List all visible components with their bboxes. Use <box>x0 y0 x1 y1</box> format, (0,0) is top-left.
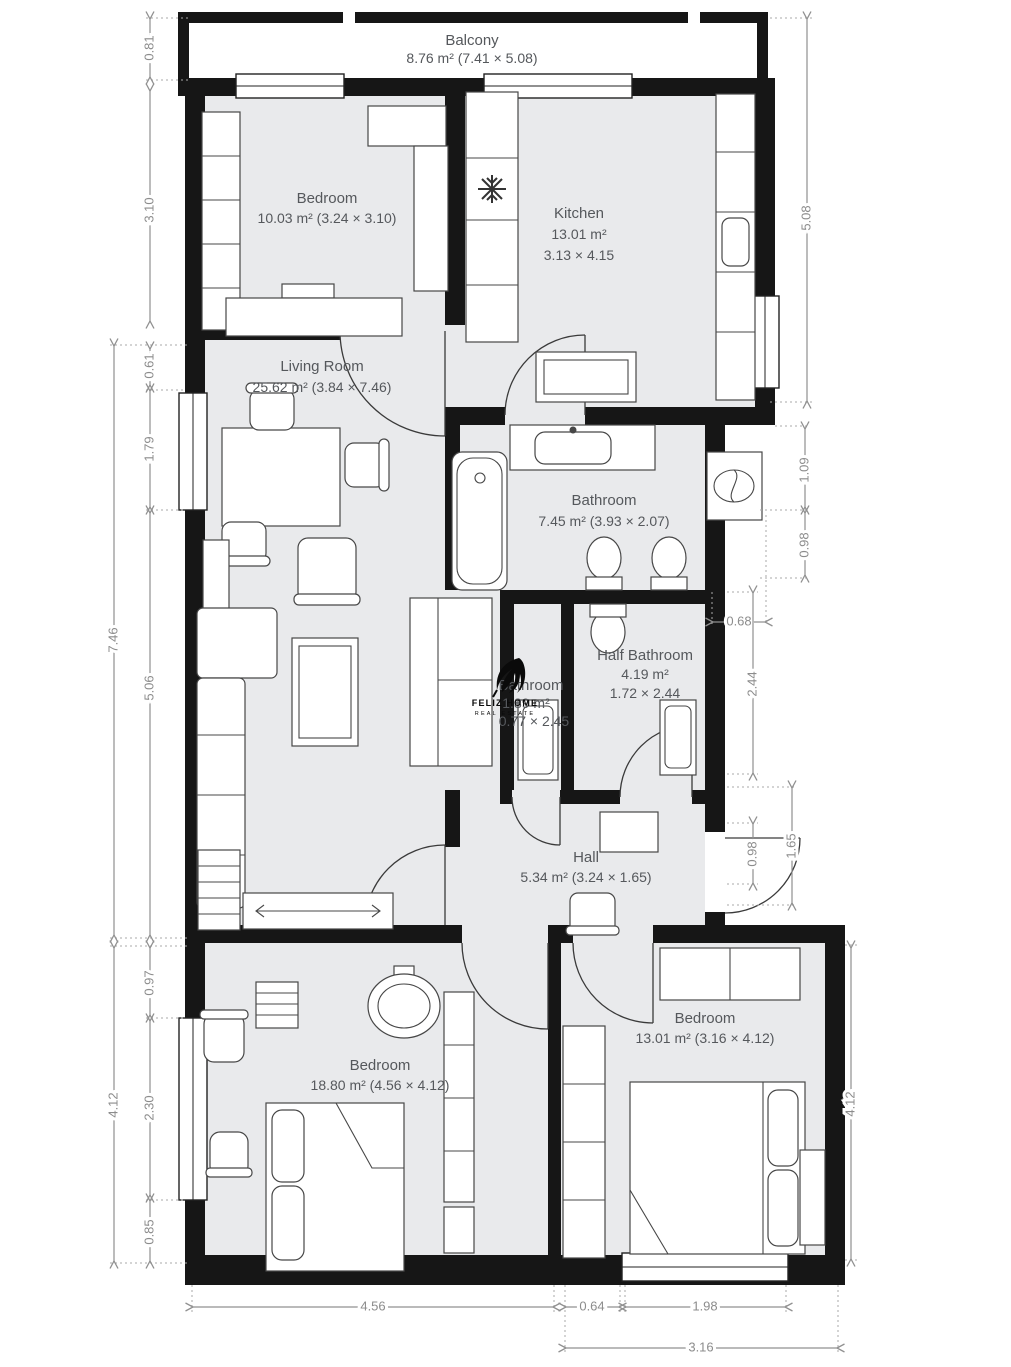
svg-text:0.85: 0.85 <box>141 1219 156 1244</box>
svg-text:13.01 m² (3.16 × 4.12): 13.01 m² (3.16 × 4.12) <box>636 1030 775 1046</box>
wardrobe <box>202 112 240 330</box>
kitchen-sink <box>722 218 749 266</box>
svg-text:0.97: 0.97 <box>141 970 156 995</box>
window-bedroom-br-bottom <box>622 1253 788 1281</box>
svg-text:0.64: 0.64 <box>579 1298 604 1313</box>
svg-text:FELIZ HOME: FELIZ HOME <box>472 698 539 708</box>
coffee-table <box>292 638 358 746</box>
cushion-chair <box>206 1132 252 1177</box>
tall-cabinet <box>410 598 492 766</box>
window-bedroom-top <box>236 74 344 98</box>
svg-text:Balcony: Balcony <box>445 32 499 49</box>
svg-text:5.08: 5.08 <box>798 205 813 230</box>
svg-text:0.81: 0.81 <box>141 35 156 60</box>
svg-text:5.06: 5.06 <box>141 675 156 700</box>
washbasin <box>660 700 696 775</box>
wardrobe <box>563 1026 605 1258</box>
svg-text:Living Room: Living Room <box>280 358 363 375</box>
stool <box>566 893 619 935</box>
dim-left-inner: 0.81 3.10 0.61 1.79 5.06 0.97 2.30 0.85 <box>141 18 156 1262</box>
svg-text:1.09: 1.09 <box>796 457 811 482</box>
freezer-snowflake-icon <box>478 175 506 203</box>
svg-text:1.65: 1.65 <box>783 833 798 858</box>
shelf-unit <box>256 982 298 1028</box>
svg-text:1.72 × 2.44: 1.72 × 2.44 <box>610 685 681 701</box>
svg-text:0.68: 0.68 <box>726 613 751 628</box>
dresser <box>226 298 402 336</box>
cushion-chair <box>200 1010 248 1062</box>
dining-table <box>222 428 340 526</box>
pillow <box>272 1186 304 1260</box>
window-bedroom-bl-left <box>179 1018 207 1200</box>
double-bed <box>630 1082 805 1254</box>
bathtub <box>452 452 507 590</box>
svg-text:Kitchen: Kitchen <box>554 205 604 222</box>
bathroom-sink-counter <box>510 425 655 470</box>
label-kitchen: Kitchen 13.01 m² 3.13 × 4.15 <box>544 205 615 263</box>
svg-text:4.19 m²: 4.19 m² <box>621 666 669 682</box>
hall-cabinet <box>600 812 658 852</box>
svg-text:13.01 m²: 13.01 m² <box>551 226 607 242</box>
pillow <box>272 1110 304 1182</box>
nightstand <box>800 1150 825 1245</box>
svg-text:4.56: 4.56 <box>360 1298 385 1313</box>
svg-text:5.34 m² (3.24 × 1.65): 5.34 m² (3.24 × 1.65) <box>520 869 651 885</box>
dresser <box>660 948 800 1000</box>
svg-text:Bedroom: Bedroom <box>297 190 358 207</box>
svg-text:3.13 × 4.15: 3.13 × 4.15 <box>544 247 615 263</box>
cabinet <box>414 146 448 291</box>
svg-text:Bedroom: Bedroom <box>675 1010 736 1027</box>
dining-chair <box>345 439 389 491</box>
svg-text:18.80 m² (4.56 × 4.12): 18.80 m² (4.56 × 4.12) <box>311 1077 450 1093</box>
pillow <box>768 1090 798 1166</box>
svg-text:1.98: 1.98 <box>692 1298 717 1313</box>
svg-text:4.12: 4.12 <box>842 1091 857 1116</box>
desk <box>368 106 446 146</box>
svg-text:4.12: 4.12 <box>105 1092 120 1117</box>
svg-text:3.10: 3.10 <box>141 197 156 222</box>
svg-text:7.45 m² (3.93 × 2.07): 7.45 m² (3.93 × 2.07) <box>538 513 669 529</box>
sliding-closet <box>243 893 393 929</box>
svg-text:0.98: 0.98 <box>796 532 811 557</box>
shelf <box>282 284 334 298</box>
svg-text:2.44: 2.44 <box>744 671 759 696</box>
floor-plan: 0.81 3.10 0.61 1.79 5.06 0.97 2.30 0.85 … <box>0 0 1011 1367</box>
svg-text:25.62 m² (3.84 × 7.46): 25.62 m² (3.84 × 7.46) <box>253 379 392 395</box>
svg-text:0.61: 0.61 <box>141 353 156 378</box>
svg-text:8.76 m² (7.41 × 5.08): 8.76 m² (7.41 × 5.08) <box>406 50 537 66</box>
radiator <box>198 850 240 930</box>
washer-niche <box>707 452 762 520</box>
svg-text:0.98: 0.98 <box>744 841 759 866</box>
svg-text:2.30: 2.30 <box>141 1095 156 1120</box>
dim-bottom: 4.56 0.64 1.98 3.16 <box>192 1298 838 1354</box>
wardrobe <box>444 992 474 1202</box>
double-bed <box>266 1103 404 1271</box>
label-balcony: Balcony 8.76 m² (7.41 × 5.08) <box>406 32 537 66</box>
svg-text:1.79: 1.79 <box>141 436 156 461</box>
dim-left-outer: 7.46 4.12 <box>105 345 120 1262</box>
svg-text:Bedroom: Bedroom <box>350 1057 411 1074</box>
armchair <box>294 538 360 605</box>
svg-text:REAL ESTATE: REAL ESTATE <box>475 711 535 717</box>
kitchen-counter-left <box>466 92 518 342</box>
svg-text:Hall: Hall <box>573 849 599 866</box>
bidet <box>651 537 687 590</box>
floor-plan-svg: 0.81 3.10 0.61 1.79 5.06 0.97 2.30 0.85 … <box>0 0 1011 1367</box>
window-living-left <box>179 393 207 510</box>
pillow <box>768 1170 798 1246</box>
svg-text:Half Bathroom: Half Bathroom <box>597 647 693 664</box>
svg-text:7.46: 7.46 <box>105 627 120 652</box>
svg-text:Bathroom: Bathroom <box>571 492 636 509</box>
svg-text:3.16: 3.16 <box>688 1339 713 1354</box>
svg-text:10.03 m² (3.24 × 3.10): 10.03 m² (3.24 × 3.10) <box>258 210 397 226</box>
nightstand <box>444 1207 474 1253</box>
toilet <box>590 604 626 653</box>
toilet <box>586 537 622 590</box>
